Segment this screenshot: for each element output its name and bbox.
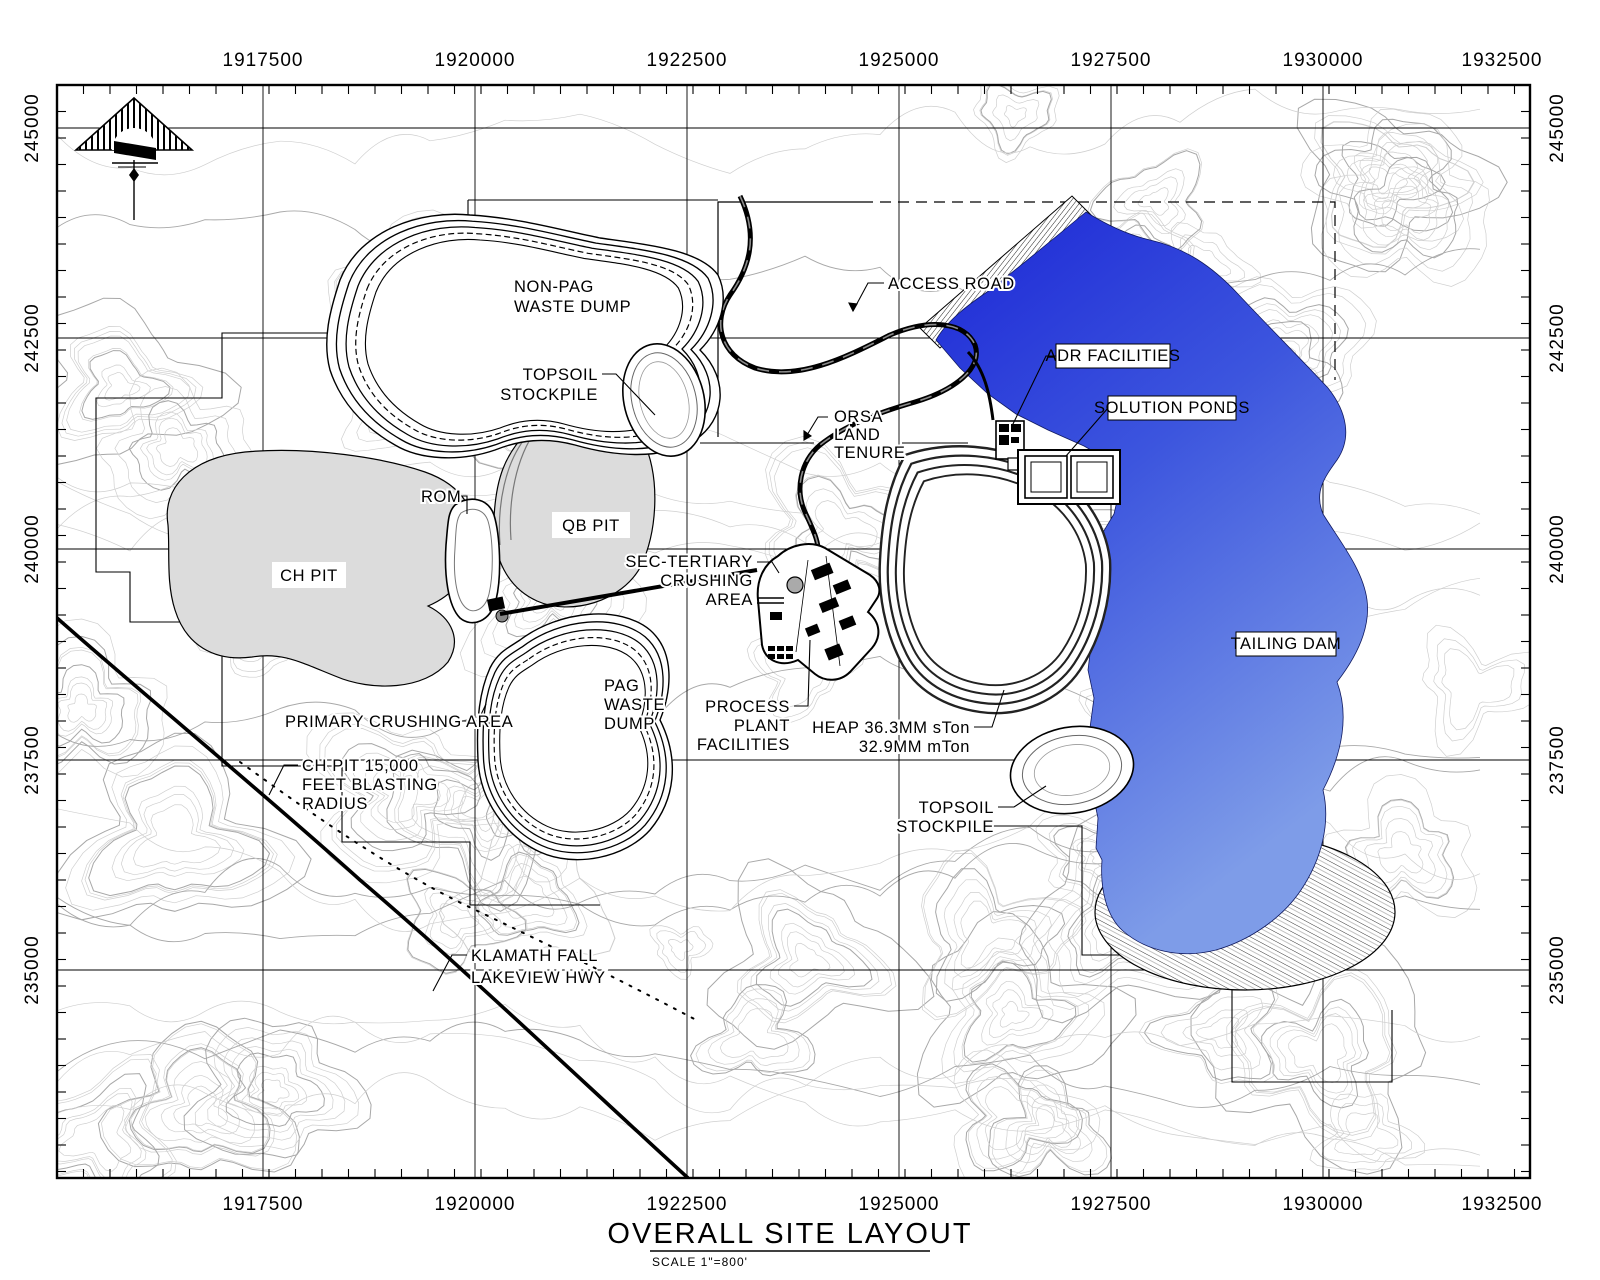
y-axis-left-4: 235000 (22, 935, 43, 1004)
x-axis-bottom-4: 1927500 (1071, 1194, 1152, 1215)
label-heap-1: HEAP 36.3MM sTon (812, 719, 970, 737)
label-highway-1: KLAMATH FALL (471, 947, 598, 965)
label-adr-facilities: ADR FACILITIES (1046, 344, 1181, 368)
y-axis-right-2: 240000 (1547, 514, 1568, 583)
y-axis-left-3: 237500 (22, 725, 43, 794)
label-orsa-2: LAND (834, 426, 880, 444)
site-layout-map: NON-PAG WASTE DUMP TOPSOIL STOCKPILE ACC… (0, 0, 1600, 1280)
orsa-boundary-solid (718, 202, 862, 437)
y-axis-right-0: 245000 (1547, 93, 1568, 162)
y-axis-left-1: 242500 (22, 303, 43, 372)
x-axis-bottom-3: 1925000 (859, 1194, 940, 1215)
x-axis-bottom-0: 1917500 (223, 1194, 304, 1215)
label-pag-3: DUMP (604, 715, 655, 733)
y-axis-left-0: 245000 (22, 93, 43, 162)
label-tailing-dam: TAILING DAM (1231, 632, 1342, 656)
solution-ponds (1018, 450, 1120, 504)
label-sec-tertiary-3: AREA (706, 591, 753, 609)
label-orsa-1: ORSA (834, 408, 883, 426)
y-axis-left-2: 240000 (22, 514, 43, 583)
label-solution-ponds: SOLUTION PONDS (1094, 396, 1250, 420)
label-blasting-3: RADIUS (302, 795, 368, 813)
x-axis-bottom-5: 1930000 (1283, 1194, 1364, 1215)
y-axis-right-1: 242500 (1547, 303, 1568, 372)
scale-note: SCALE 1"=800' (652, 1255, 748, 1269)
x-axis-bottom-1: 1920000 (435, 1194, 516, 1215)
label-non-pag-2: WASTE DUMP (514, 298, 631, 316)
label-non-pag-1: NON-PAG (514, 278, 594, 296)
label-pag-1: PAG (604, 677, 639, 695)
label-heap-2: 32.9MM mTon (859, 738, 970, 756)
x-axis-top-5: 1930000 (1283, 50, 1364, 71)
north-arrow-icon (76, 98, 192, 220)
svg-text:ADR FACILITIES: ADR FACILITIES (1046, 347, 1181, 365)
label-blasting-1: CH PIT 15,000 (302, 757, 419, 775)
process-plant-facilities-pad (758, 544, 880, 680)
label-qb-pit: QB PIT (552, 512, 630, 538)
label-sec-tertiary-1: SEC-TERTIARY (625, 553, 753, 571)
drawing-title: OVERALL SITE LAYOUT (607, 1218, 972, 1250)
label-highway-2: LAKEVIEW HWY (471, 969, 606, 987)
label-pag-2: WASTE (604, 696, 665, 714)
label-ch-pit: CH PIT (272, 562, 346, 588)
label-topsoil-upper-2: STOCKPILE (500, 386, 598, 404)
label-topsoil-lower-1: TOPSOIL (919, 799, 994, 817)
svg-text:SOLUTION PONDS: SOLUTION PONDS (1094, 399, 1250, 417)
site-layout-sheet: NON-PAG WASTE DUMP TOPSOIL STOCKPILE ACC… (0, 0, 1600, 1280)
x-axis-top-4: 1927500 (1071, 50, 1152, 71)
pag-waste-dump (478, 614, 673, 860)
y-axis-right-4: 235000 (1547, 935, 1568, 1004)
title-block: OVERALL SITE LAYOUT SCALE 1"=800' (607, 1218, 972, 1269)
svg-text:TAILING DAM: TAILING DAM (1231, 635, 1342, 653)
label-orsa-3: TENURE (834, 444, 905, 462)
label-blasting-2: FEET BLASTING (302, 776, 438, 794)
label-process-plant-2: PLANT (734, 717, 790, 735)
label-primary-crushing: PRIMARY CRUSHING AREA (285, 713, 513, 731)
x-axis-top-3: 1925000 (859, 50, 940, 71)
x-axis-top-1: 1920000 (435, 50, 516, 71)
svg-text:QB PIT: QB PIT (562, 517, 620, 535)
x-axis-bottom-6: 1932500 (1462, 1194, 1543, 1215)
x-axis-bottom-2: 1922500 (647, 1194, 728, 1215)
label-sec-tertiary-2: CRUSHING (660, 572, 753, 590)
x-axis-top-6: 1932500 (1462, 50, 1543, 71)
label-process-plant-3: FACILITIES (697, 736, 790, 754)
x-axis-top-2: 1922500 (647, 50, 728, 71)
x-axis-top-0: 1917500 (223, 50, 304, 71)
label-topsoil-lower-2: STOCKPILE (896, 818, 994, 836)
label-process-plant-1: PROCESS (705, 698, 790, 716)
y-axis-right-3: 237500 (1547, 725, 1568, 794)
label-rom: ROM (421, 488, 461, 506)
label-access-road: ACCESS ROAD (888, 275, 1015, 293)
svg-text:CH PIT: CH PIT (280, 567, 338, 585)
label-topsoil-upper-1: TOPSOIL (523, 366, 598, 384)
